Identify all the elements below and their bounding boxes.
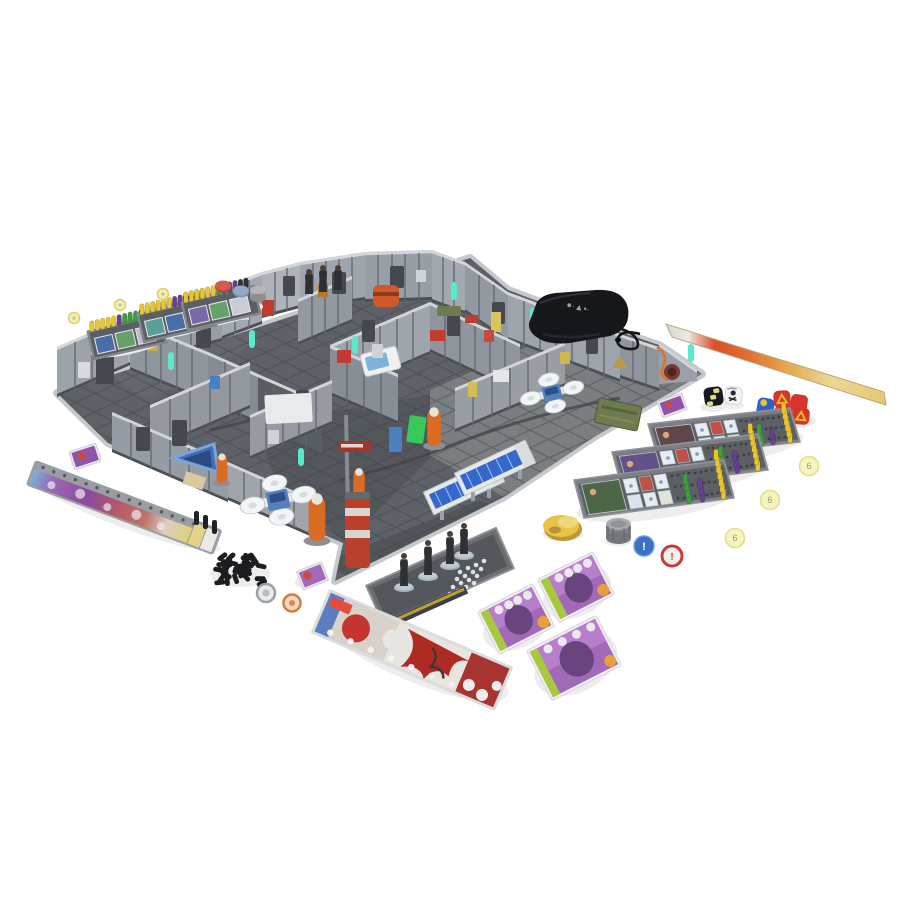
svg-text:6: 6 xyxy=(806,461,811,471)
svg-text:!: ! xyxy=(642,541,646,553)
svg-text:6: 6 xyxy=(767,495,772,505)
svg-text:!: ! xyxy=(670,552,673,563)
svg-text:6: 6 xyxy=(732,533,737,543)
